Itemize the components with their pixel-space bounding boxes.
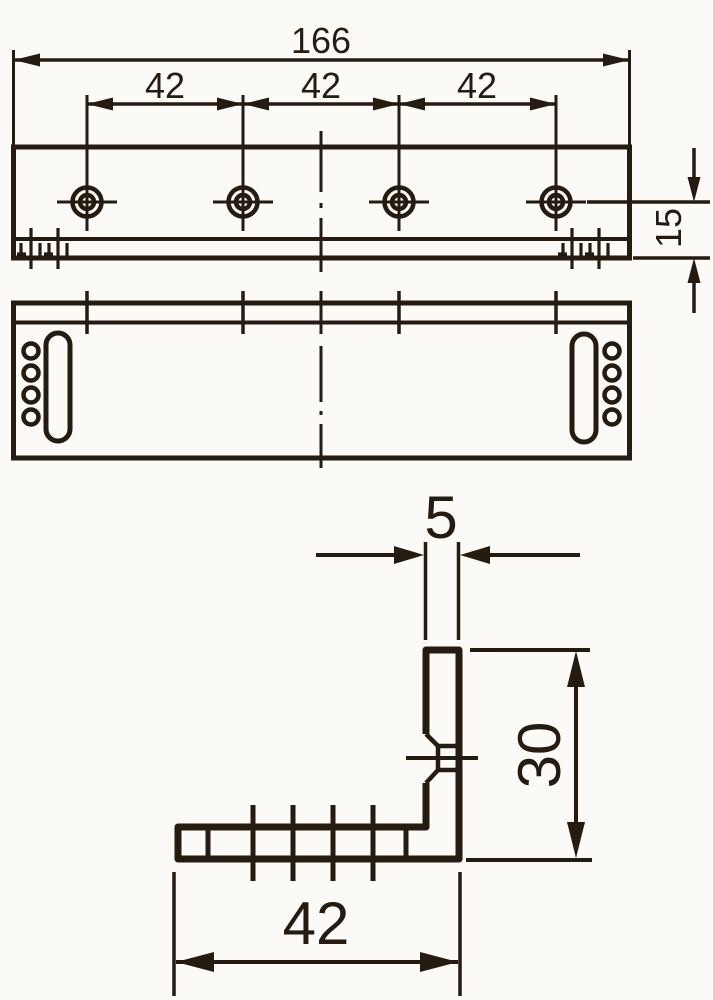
arrowhead-right-icon xyxy=(530,98,556,111)
side-holes-right xyxy=(605,344,620,425)
arrowhead-down-icon xyxy=(688,177,701,202)
top-view xyxy=(14,95,630,272)
dim-label-leg: 30 xyxy=(506,722,573,789)
bracket-technical-drawing: 166 42 42 42 15 xyxy=(0,0,713,1000)
arrowhead-left-icon xyxy=(243,98,269,111)
arrowhead-right-icon xyxy=(373,98,399,111)
arrowhead-left-icon xyxy=(87,98,113,111)
slot-right xyxy=(572,334,596,442)
dim-label-pitch2: 42 xyxy=(301,65,341,106)
dim-edge-15: 15 xyxy=(587,148,710,313)
arrowhead-right-icon xyxy=(603,54,630,67)
serration-left xyxy=(17,228,67,269)
dim-base-42: 42 xyxy=(174,872,460,996)
arrowhead-left-icon xyxy=(14,54,41,67)
drawing-sheet: 166 42 42 42 15 xyxy=(0,0,713,1000)
arrowhead-right-icon xyxy=(420,952,458,972)
dim-5-extension-lines xyxy=(426,542,459,640)
arrowhead-left-icon xyxy=(460,546,490,564)
dim-label-pitch3: 42 xyxy=(457,65,497,106)
arrowhead-right-icon xyxy=(217,98,243,111)
dim-leg-30: 30 xyxy=(466,650,592,860)
base-inner-lines xyxy=(208,829,406,857)
l-profile-outline xyxy=(178,650,459,859)
arrowhead-up-icon xyxy=(688,258,701,283)
dim-label-base: 42 xyxy=(283,890,350,957)
arrowhead-right-icon xyxy=(394,546,424,564)
dim-label-pitch1: 42 xyxy=(145,65,185,106)
base-serration-ticks xyxy=(253,805,373,881)
slot-left xyxy=(46,333,70,441)
serration-right xyxy=(558,228,608,269)
dim-label-edge: 15 xyxy=(648,208,689,248)
dim-hole-pitch-42: 42 42 42 xyxy=(87,65,556,111)
arrowhead-left-icon xyxy=(399,98,425,111)
dim-thickness-5: 5 xyxy=(316,484,580,640)
arrowhead-up-icon xyxy=(567,651,585,687)
front-view xyxy=(14,291,630,468)
dim-label-thickness: 5 xyxy=(424,484,457,551)
arrowhead-left-icon xyxy=(176,952,214,972)
countersunk-hole-detail xyxy=(406,734,478,783)
side-holes-left xyxy=(24,344,39,425)
section-view xyxy=(178,650,478,881)
dim-label-overall: 166 xyxy=(291,20,351,61)
arrowhead-down-icon xyxy=(567,822,585,858)
